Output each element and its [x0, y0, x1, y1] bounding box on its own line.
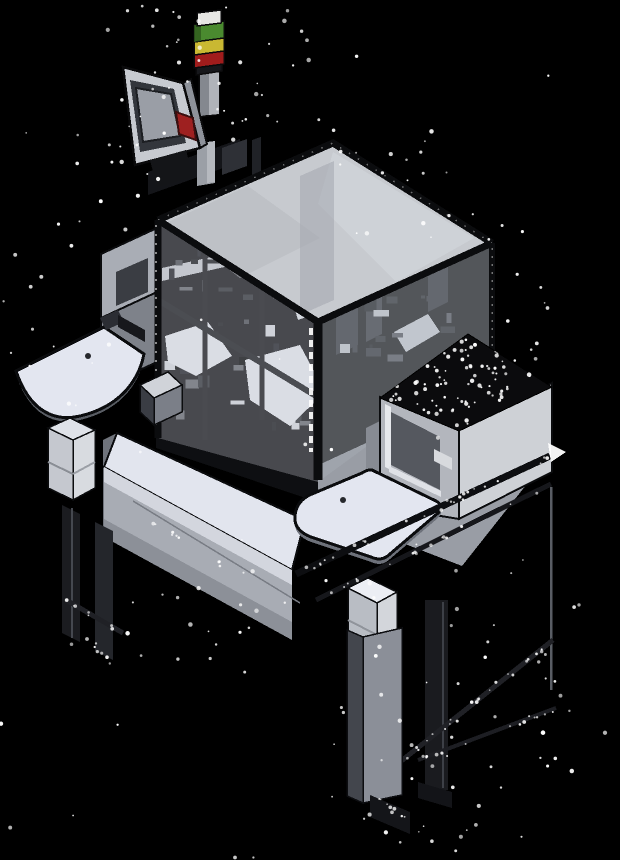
- noise-dot: [493, 715, 496, 718]
- noise-dot: [238, 631, 241, 634]
- noise-dot: [395, 393, 398, 396]
- noise-dot: [577, 603, 580, 606]
- noise-dot: [151, 88, 154, 91]
- noise-dot: [119, 160, 123, 164]
- bin-box-right: [73, 430, 95, 500]
- noise-dot: [494, 378, 496, 380]
- noise-dot: [435, 383, 439, 387]
- noise-dot: [208, 631, 210, 633]
- noise-dot: [108, 143, 111, 146]
- noise-dot: [535, 653, 538, 656]
- noise-dot: [450, 501, 452, 503]
- noise-dot: [95, 642, 97, 644]
- noise-dot: [99, 199, 103, 203]
- noise-dot: [426, 364, 430, 368]
- noise-dot: [450, 736, 453, 739]
- noise-dot: [172, 11, 174, 13]
- noise-dot: [415, 380, 419, 384]
- noise-dot: [128, 126, 130, 128]
- stack-pole-lower-highlight: [207, 141, 215, 183]
- noise-dot: [568, 710, 570, 712]
- noise-dot: [486, 365, 488, 367]
- fan-tray-right-hole: [340, 497, 346, 503]
- noise-dot: [200, 319, 203, 322]
- noise-dot: [454, 569, 458, 573]
- noise-dot: [502, 361, 504, 363]
- noise-dot: [76, 134, 79, 137]
- noise-dot: [473, 488, 475, 490]
- noise-dot: [106, 28, 110, 32]
- noise-dot: [445, 499, 448, 502]
- noise-dot: [495, 372, 497, 374]
- noise-dot: [460, 349, 464, 353]
- noise-dot: [544, 653, 547, 656]
- noise-dot: [552, 711, 554, 713]
- noise-dot: [140, 116, 142, 118]
- noise-dot: [455, 607, 459, 611]
- noise-dot: [154, 71, 156, 73]
- noise-dot: [377, 645, 381, 649]
- noise-dot: [539, 286, 542, 289]
- front-leg-left-face: [347, 630, 363, 803]
- noise-dot: [414, 391, 418, 395]
- noise-dot: [120, 98, 124, 102]
- noise-dot: [250, 569, 254, 573]
- noise-dot: [541, 648, 543, 650]
- noise-dot: [317, 118, 320, 121]
- noise-dot: [96, 650, 99, 653]
- noise-dot: [324, 579, 327, 582]
- noise-dot: [29, 365, 31, 367]
- noise-dot: [151, 25, 154, 28]
- noise-dot: [480, 386, 482, 388]
- noise-dot: [497, 480, 499, 482]
- noise-dot: [333, 743, 335, 745]
- noise-dot: [446, 172, 448, 174]
- noise-dot: [559, 694, 563, 698]
- noise-dot: [176, 41, 178, 43]
- noise-dot: [435, 405, 437, 407]
- noise-dot: [188, 622, 193, 627]
- noise-dot: [279, 358, 281, 360]
- noise-dot: [440, 508, 444, 512]
- noise-dot: [216, 108, 219, 111]
- noise-dot: [355, 578, 357, 580]
- noise-dot: [453, 348, 457, 352]
- noise-dot: [75, 162, 79, 166]
- noise-dot: [384, 830, 388, 834]
- noise-dot: [431, 400, 433, 402]
- noise-dot: [105, 655, 109, 659]
- noise-dot: [241, 120, 243, 122]
- noise-dot: [418, 831, 420, 833]
- noise-dot: [536, 716, 538, 718]
- noise-dot: [330, 591, 333, 594]
- noise-dot: [424, 515, 426, 517]
- noise-dot: [492, 372, 495, 375]
- noise-dot: [468, 406, 470, 408]
- noise-dot: [343, 586, 345, 588]
- noise-dot: [355, 55, 358, 58]
- noise-dot: [395, 399, 397, 401]
- noise-dot: [286, 9, 289, 12]
- noise-dot: [70, 643, 74, 647]
- noise-dot: [507, 673, 509, 675]
- noise-dot: [450, 719, 452, 721]
- noise-dot: [332, 129, 336, 133]
- noise-dot: [219, 565, 222, 568]
- noise-dot: [426, 682, 428, 684]
- noise-dot: [509, 725, 511, 727]
- noise-dot: [539, 757, 541, 759]
- noise-dot: [94, 646, 96, 648]
- noise-dot: [450, 624, 453, 627]
- noise-dot: [443, 379, 445, 381]
- noise-dot: [535, 492, 538, 495]
- noise-dot: [535, 341, 539, 345]
- noise-dot: [197, 59, 200, 62]
- noise-dot: [520, 836, 522, 838]
- noise-dot: [209, 657, 212, 660]
- noise-dot: [519, 723, 522, 726]
- noise-dot: [443, 352, 446, 355]
- noise-dot: [554, 757, 558, 761]
- noise-dot: [139, 451, 142, 454]
- noise-dot: [534, 717, 536, 719]
- noise-dot: [506, 319, 510, 323]
- noise-dot: [510, 503, 512, 505]
- noise-dot: [238, 60, 242, 64]
- noise-dot: [421, 221, 425, 225]
- noise-dot: [100, 652, 103, 655]
- noise-dot: [347, 583, 349, 585]
- noise-dot: [546, 306, 550, 310]
- noise-dot: [429, 543, 432, 546]
- noise-dot: [477, 804, 481, 808]
- noise-dot: [511, 674, 514, 677]
- noise-dot: [110, 627, 114, 631]
- noise-dot: [177, 39, 180, 42]
- noise-dot: [484, 485, 486, 487]
- noise-dot: [469, 365, 472, 368]
- noise-dot: [319, 562, 321, 564]
- noise-dot: [458, 495, 461, 498]
- cad-render-stage: [0, 0, 620, 860]
- noise-dot: [521, 230, 524, 233]
- noise-dot: [398, 397, 402, 401]
- noise-dot: [446, 355, 450, 359]
- noise-dot: [438, 376, 440, 378]
- noise-dot: [155, 8, 159, 12]
- noise-dot: [464, 418, 468, 422]
- noise-dot: [417, 749, 419, 751]
- noise-dot: [423, 825, 425, 827]
- noise-dot: [368, 813, 372, 817]
- noise-dot: [541, 730, 546, 735]
- noise-dot: [490, 765, 493, 768]
- noise-dot: [73, 605, 75, 607]
- noise-dot: [436, 436, 440, 440]
- noise-dot: [379, 693, 383, 697]
- noise-dot: [440, 383, 442, 385]
- noise-dot: [67, 401, 71, 405]
- noise-dot: [500, 390, 503, 393]
- noise-dot: [132, 601, 134, 603]
- noise-dot: [186, 80, 189, 83]
- noise-dot: [282, 19, 287, 24]
- noise-dot: [381, 171, 384, 174]
- noise-dot: [431, 733, 433, 735]
- noise-dot: [368, 581, 373, 586]
- noise-dot: [13, 253, 17, 257]
- noise-dot: [390, 810, 394, 814]
- noise-dot: [434, 412, 438, 416]
- noise-dot: [488, 385, 490, 387]
- noise-dot: [241, 539, 243, 541]
- noise-dot: [389, 564, 391, 566]
- noise-dot: [473, 374, 477, 378]
- noise-dot: [85, 637, 89, 641]
- noise-dot: [176, 596, 179, 599]
- noise-dot: [162, 95, 166, 99]
- noise-dot: [454, 849, 457, 852]
- noise-dot: [109, 662, 111, 664]
- noise-dot: [534, 357, 538, 361]
- noise-dot: [467, 383, 469, 385]
- noise-dot: [530, 348, 533, 351]
- noise-dot: [243, 671, 246, 674]
- noise-dot: [380, 799, 381, 800]
- noise-dot: [10, 352, 12, 354]
- noise-dot: [446, 755, 448, 757]
- noise-dot: [459, 835, 463, 839]
- noise-dot: [389, 398, 393, 402]
- noise-dot: [151, 522, 155, 526]
- noise-dot: [572, 605, 576, 609]
- noise-dot: [440, 752, 443, 755]
- noise-dot: [467, 355, 469, 357]
- noise-dot: [266, 114, 269, 117]
- noise-dot: [363, 818, 365, 820]
- noise-dot: [501, 224, 504, 227]
- noise-dot: [465, 743, 467, 745]
- noise-dot: [25, 132, 27, 134]
- noise-dot: [405, 159, 408, 162]
- noise-dot: [467, 423, 469, 425]
- noise-dot: [522, 720, 526, 724]
- noise-dot: [527, 372, 532, 377]
- noise-dot: [392, 395, 394, 397]
- noise-dot: [75, 404, 77, 406]
- noise-dot: [401, 815, 403, 817]
- noise-dot: [441, 537, 443, 539]
- noise-dot: [545, 677, 547, 679]
- noise-dot: [445, 536, 448, 539]
- noise-dot: [430, 764, 434, 768]
- noise-dot: [399, 841, 402, 844]
- noise-dot: [451, 785, 455, 789]
- noise-dot: [389, 152, 393, 156]
- noise-dot: [460, 340, 464, 344]
- noise-dot: [305, 38, 309, 42]
- noise-dot: [470, 700, 474, 704]
- noise-dot: [465, 349, 467, 351]
- noise-dot: [474, 401, 476, 403]
- noise-dot: [163, 132, 166, 135]
- noise-dot: [386, 803, 387, 804]
- noise-dot: [404, 816, 406, 818]
- noise-dot: [217, 82, 220, 85]
- noise-dot: [419, 151, 422, 154]
- noise-dot: [256, 83, 258, 85]
- noise-dot: [457, 682, 460, 685]
- noise-dot: [460, 400, 463, 403]
- stack-light-green-shade: [194, 24, 201, 42]
- noise-dot: [223, 110, 225, 112]
- noise-dot: [88, 615, 90, 617]
- noise-dot: [2, 300, 4, 302]
- noise-dot: [494, 681, 497, 684]
- noise-dot: [215, 643, 217, 645]
- noise-dot: [136, 144, 139, 147]
- noise-dot: [435, 753, 439, 757]
- noise-dot: [171, 531, 174, 534]
- noise-dot: [175, 535, 177, 537]
- noise-dot: [443, 396, 446, 399]
- noise-dot: [217, 560, 220, 563]
- noise-dot: [500, 395, 504, 399]
- noise-dot: [156, 177, 160, 181]
- noise-dot: [8, 826, 12, 830]
- noise-dot: [355, 152, 357, 154]
- noise-dot: [248, 627, 251, 630]
- noise-dot: [146, 173, 148, 175]
- noise-dot: [339, 163, 341, 165]
- noise-dot: [198, 46, 202, 50]
- noise-dot: [356, 232, 358, 234]
- noise-dot: [554, 680, 557, 683]
- noise-dot: [107, 343, 111, 347]
- noise-dot: [422, 172, 425, 175]
- noise-dot: [493, 367, 496, 370]
- noise-dot: [469, 345, 473, 349]
- noise-dot: [455, 423, 459, 427]
- noise-dot: [424, 383, 426, 385]
- noise-dot: [464, 402, 468, 406]
- noise-dot: [284, 602, 286, 604]
- noise-dot: [178, 536, 181, 539]
- noise-dot: [528, 715, 530, 717]
- table-leg-right: [425, 600, 448, 790]
- stack-light: [194, 10, 224, 117]
- noise-dot: [231, 122, 234, 125]
- noise-dot: [140, 654, 143, 657]
- noise-dot: [225, 6, 227, 8]
- noise-dot: [29, 285, 33, 289]
- noise-dot: [330, 448, 333, 451]
- noise-dot: [423, 408, 426, 411]
- noise-dot: [498, 399, 501, 402]
- noise-dot: [504, 372, 507, 375]
- controller-panel-frame-left: [385, 404, 391, 470]
- noise-dot: [292, 64, 294, 66]
- noise-dot: [364, 540, 367, 543]
- noise-dot: [196, 586, 200, 590]
- noise-dot: [514, 359, 517, 362]
- noise-dot: [480, 364, 483, 367]
- noise-dot: [332, 556, 334, 558]
- noise-dot: [483, 656, 487, 660]
- noise-dot: [141, 5, 144, 8]
- noise-dot: [116, 724, 118, 726]
- noise-dot: [136, 194, 140, 198]
- noise-dot: [493, 624, 495, 626]
- noise-dot: [430, 839, 434, 843]
- noise-dot: [110, 624, 113, 627]
- noise-dot: [313, 567, 316, 570]
- noise-dot: [444, 382, 447, 385]
- noise-dot: [339, 150, 343, 154]
- noise-dot: [466, 491, 469, 494]
- noise-dot: [445, 370, 447, 372]
- noise-dot: [331, 796, 333, 798]
- noise-dot: [510, 572, 512, 574]
- noise-dot: [407, 179, 409, 181]
- noise-dot: [462, 492, 466, 496]
- noise-dot: [406, 757, 409, 760]
- noise-dot: [456, 720, 459, 723]
- noise-dot: [516, 273, 519, 276]
- noise-dot: [546, 764, 549, 767]
- noise-dot: [430, 236, 432, 238]
- stack-light-cap: [197, 10, 221, 26]
- noise-dot: [500, 786, 502, 788]
- noise-dot: [303, 443, 307, 447]
- noise-dot: [367, 543, 370, 546]
- noise-dot: [415, 543, 417, 545]
- noise-dot: [374, 654, 378, 658]
- noise-dot: [487, 367, 490, 370]
- noise-dot: [449, 723, 451, 725]
- noise-dot: [570, 769, 574, 773]
- noise-dot: [324, 559, 326, 561]
- noise-dot: [460, 525, 463, 528]
- noise-dot: [87, 611, 90, 614]
- noise-dot: [72, 815, 74, 817]
- noise-dot: [453, 501, 455, 503]
- noise-dot: [486, 640, 489, 643]
- noise-dot: [300, 29, 303, 32]
- noise-dot: [388, 805, 392, 809]
- noise-dot: [161, 593, 163, 595]
- noise-dot: [477, 697, 480, 700]
- noise-dot: [254, 609, 259, 614]
- noise-dot: [465, 339, 468, 342]
- noise-dot: [452, 408, 455, 411]
- noise-dot: [413, 551, 416, 554]
- noise-dot: [474, 823, 478, 827]
- noise-dot: [435, 369, 439, 373]
- noise-dot: [91, 362, 93, 364]
- noise-dot: [231, 137, 235, 141]
- noise-dot: [466, 829, 468, 831]
- noise-dot: [268, 43, 270, 45]
- noise-dot: [424, 140, 426, 142]
- front-leg-right-face: [363, 628, 402, 803]
- noise-dot: [78, 220, 80, 222]
- noise-dot: [422, 755, 425, 758]
- noise-dot: [380, 759, 382, 761]
